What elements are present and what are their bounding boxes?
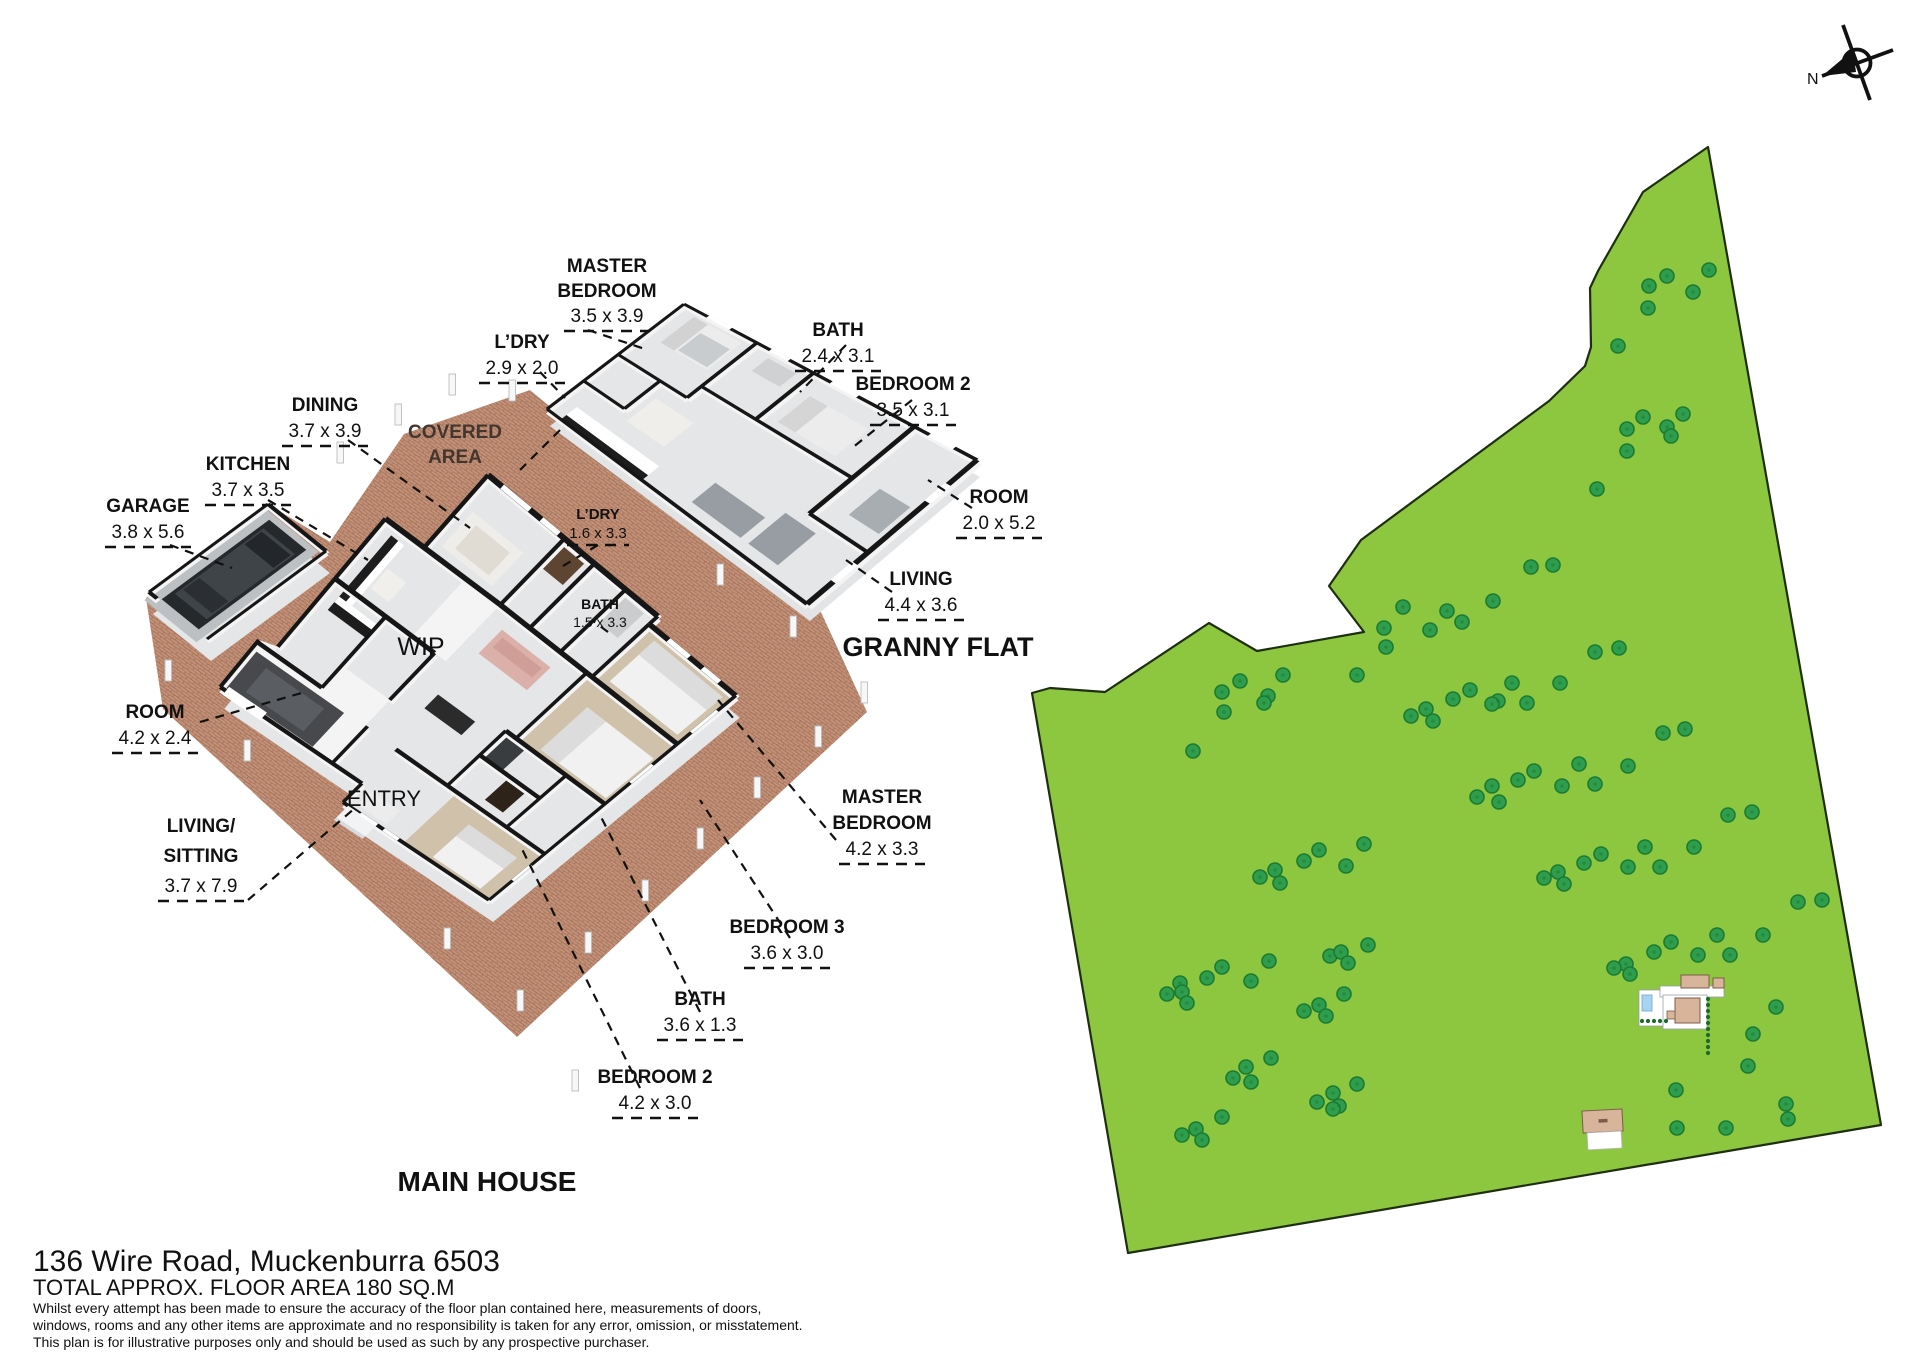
svg-text:N: N: [1807, 71, 1819, 88]
svg-text:GRANNY FLAT: GRANNY FLAT: [843, 632, 1034, 662]
svg-text:This plan is for illustrative: This plan is for illustrative purposes o…: [33, 1334, 649, 1350]
svg-text:AREA: AREA: [428, 447, 482, 468]
svg-text:LIVING/: LIVING/: [167, 816, 236, 837]
svg-text:L’DRY: L’DRY: [576, 506, 620, 523]
svg-text:BEDROOM: BEDROOM: [832, 813, 931, 834]
svg-text:3.6 x 3.0: 3.6 x 3.0: [751, 943, 824, 964]
svg-text:L’DRY: L’DRY: [494, 332, 550, 353]
svg-text:BEDROOM: BEDROOM: [557, 281, 656, 302]
svg-text:windows, rooms and any other i: windows, rooms and any other items are a…: [32, 1317, 803, 1333]
svg-text:BEDROOM 2: BEDROOM 2: [597, 1067, 712, 1088]
svg-text:COVERED: COVERED: [408, 422, 502, 443]
svg-text:Whilst every attempt has been: Whilst every attempt has been made to en…: [33, 1300, 761, 1316]
svg-text:SITTING: SITTING: [164, 846, 239, 867]
svg-text:LIVING: LIVING: [889, 569, 952, 590]
svg-text:GARAGE: GARAGE: [106, 496, 189, 517]
svg-text:3.5 x 3.9: 3.5 x 3.9: [571, 306, 644, 327]
svg-text:3.6 x 1.3: 3.6 x 1.3: [664, 1015, 737, 1036]
svg-text:4.2 x 3.0: 4.2 x 3.0: [619, 1093, 692, 1114]
svg-text:ROOM: ROOM: [125, 702, 184, 723]
svg-text:BEDROOM 2: BEDROOM 2: [855, 374, 970, 395]
svg-text:WIP: WIP: [397, 633, 444, 661]
svg-text:MASTER: MASTER: [567, 256, 648, 277]
svg-text:KITCHEN: KITCHEN: [206, 454, 290, 475]
svg-text:3.7 x 3.9: 3.7 x 3.9: [289, 421, 362, 442]
svg-text:MASTER: MASTER: [842, 787, 923, 808]
svg-text:ROOM: ROOM: [969, 487, 1028, 508]
svg-text:136 Wire Road, Muckenburra 650: 136 Wire Road, Muckenburra 6503: [33, 1245, 500, 1278]
svg-text:MAIN HOUSE: MAIN HOUSE: [398, 1166, 577, 1197]
svg-text:BATH: BATH: [674, 989, 725, 1010]
svg-text:2.4 x 3.1: 2.4 x 3.1: [802, 346, 875, 367]
svg-text:BATH: BATH: [581, 596, 619, 612]
svg-text:1.6 x 3.3: 1.6 x 3.3: [569, 525, 627, 542]
svg-text:3.7 x 7.9: 3.7 x 7.9: [165, 876, 238, 897]
svg-text:ENTRY: ENTRY: [347, 786, 421, 811]
svg-text:TOTAL APPROX. FLOOR AREA 180 S: TOTAL APPROX. FLOOR AREA 180 SQ.M: [33, 1275, 454, 1300]
svg-text:3.8 x 5.6: 3.8 x 5.6: [112, 522, 185, 543]
svg-text:4.2 x 2.4: 4.2 x 2.4: [119, 728, 192, 749]
svg-text:4.4 x 3.6: 4.4 x 3.6: [885, 595, 958, 616]
svg-text:BATH: BATH: [812, 320, 863, 341]
svg-text:DINING: DINING: [292, 395, 359, 416]
svg-text:4.2 x 3.3: 4.2 x 3.3: [846, 839, 919, 860]
svg-text:2.9 x 2.0: 2.9 x 2.0: [486, 358, 559, 379]
svg-text:1.5 x 3.3: 1.5 x 3.3: [573, 614, 627, 630]
svg-text:3.5 x 3.1: 3.5 x 3.1: [877, 400, 950, 421]
svg-text:3.7 x 3.5: 3.7 x 3.5: [212, 480, 285, 501]
svg-text:2.0 x 5.2: 2.0 x 5.2: [963, 513, 1036, 534]
svg-text:BEDROOM 3: BEDROOM 3: [729, 917, 844, 938]
